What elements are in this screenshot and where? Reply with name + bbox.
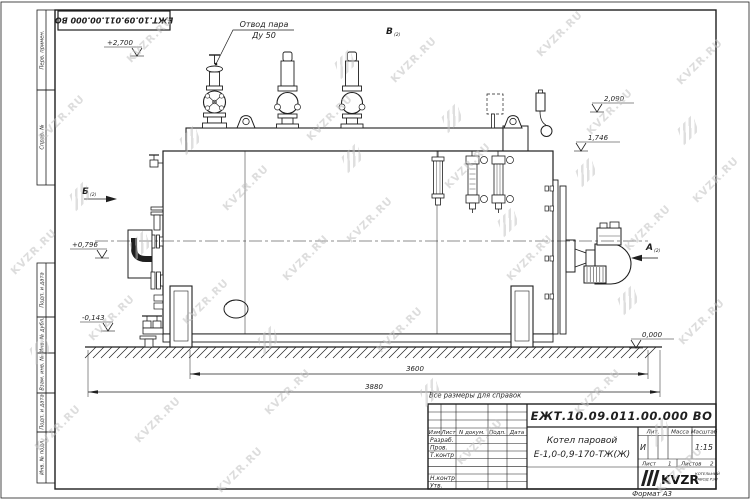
elevation-2700: +2,700 — [107, 39, 133, 47]
steam-outlet-callout: Отвод пара Ду 50 — [215, 20, 294, 65]
boiler-drawing-svg: Перв. примен. Справ. № Подп. и дата Инв.… — [0, 0, 750, 500]
format-label: Формат А3 — [632, 490, 672, 498]
view-v-sheet-ref: (2) — [394, 32, 401, 38]
frame-label-inv-dubl: Инв. № дубл. — [40, 317, 46, 353]
boiler-shell — [163, 126, 566, 342]
safety-valve-1 — [275, 52, 301, 128]
col-podp: Подп. — [489, 430, 506, 436]
lifting-lug-1 — [237, 116, 255, 128]
stamp-code: ЕЖТ.10.09.011.00.000 ВО — [55, 15, 174, 24]
elevation-0796: +0,796 — [72, 241, 98, 249]
elevation-1746: 1,746 — [588, 134, 609, 142]
dim-3600-value: 3600 — [406, 365, 424, 373]
massa-header: Масса — [671, 429, 689, 435]
phantom-fitting — [487, 94, 503, 128]
product-name-line1: Котел паровой — [547, 436, 618, 446]
control-box — [503, 126, 528, 153]
safety-valve-2 — [339, 52, 365, 128]
scale-value: 1:15 — [695, 443, 713, 452]
base-frame — [163, 334, 553, 342]
elevation-2090: 2,090 — [604, 95, 625, 103]
view-b-sheet-ref: (2) — [90, 192, 97, 198]
drain-valves — [140, 316, 163, 347]
view-v-label: В — [386, 27, 393, 37]
view-a-arrow — [631, 255, 642, 262]
frame-label-inv-podl: Инв. № подл. — [40, 439, 46, 475]
drawing-sheet: Перв. примен. Справ. № Подп. и дата Инв.… — [0, 0, 750, 500]
col-ndokum: N докум. — [459, 430, 485, 436]
ground — [85, 347, 662, 358]
row-razrab: Разраб. — [430, 437, 454, 444]
col-izm: Изм — [429, 430, 441, 436]
steam-casing-strip — [186, 128, 503, 151]
water-level-indicator — [432, 151, 444, 205]
view-a-label: А — [645, 243, 653, 253]
sheet-label: Лист — [641, 461, 657, 467]
row-utv: Утв. — [430, 482, 443, 489]
steam-valve — [203, 55, 227, 128]
left-margin-labels: Перв. примен. Справ. № Подп. и дата Инв.… — [37, 10, 55, 483]
pressure-gauge — [536, 90, 552, 137]
kvzr-logo: KVZR КОТЕЛЬНЫЙ ЗАВОД РЭП — [641, 470, 720, 487]
frame-label-perv-primen: Перв. примен. — [40, 31, 46, 70]
sheet-value: 1 — [668, 461, 672, 467]
col-list: Лист — [440, 430, 456, 436]
elevation-m0143: -0,143 — [82, 314, 105, 322]
blowoff-valve-top-left — [149, 155, 163, 167]
dimension-3600: 3600 — [190, 350, 648, 379]
row-prov: Пров. — [430, 444, 448, 451]
row-tkontr: Т.контр — [430, 452, 454, 459]
product-name-line2: Е-1,0-0,9-170-ТЖ(Ж) — [534, 450, 630, 460]
kvzr-logo-text: KVZR — [661, 472, 699, 487]
frame-label-podp-data-2: Подп. и дата — [40, 394, 46, 429]
lit-value: И — [640, 443, 646, 452]
view-b-label: Б — [82, 187, 89, 197]
steam-outlet-label-line2: Ду 50 — [251, 31, 276, 40]
masshtab-header: Масштаб — [691, 429, 718, 435]
doc-number: ЕЖТ.10.09.011.00.000 ВО — [531, 409, 713, 423]
burner-motor — [597, 228, 621, 245]
orientation-stamp: ЕЖТ.10.09.011.00.000 ВО — [55, 11, 174, 30]
burner-grille — [584, 266, 606, 283]
support-leg-left — [170, 286, 192, 347]
frame-label-podp-data-1: Подп. и дата — [40, 272, 46, 307]
view-marker-b: Б (2) — [82, 187, 117, 202]
view-marker-v: В (2) — [386, 27, 401, 38]
title-block: ЕЖТ.10.09.011.00.000 ВО Котел паровой Е-… — [428, 404, 720, 489]
lifting-lug-2 — [504, 116, 522, 128]
reference-note: Все размеры для справок — [429, 392, 522, 400]
left-nozzles — [151, 207, 163, 309]
front-plate-outer — [560, 186, 566, 334]
kvzr-logo-sub1: КОТЕЛЬНЫЙ — [695, 471, 720, 476]
col-data: Дата — [509, 430, 525, 436]
burner — [566, 222, 631, 284]
support-leg-right — [511, 286, 533, 347]
steam-outlet-label-line1: Отвод пара — [240, 20, 289, 29]
frame-label-sprav-no: Справ. № — [40, 124, 46, 149]
elevation-0000: 0,000 — [642, 331, 663, 339]
row-nkontr: Н.контр — [430, 475, 455, 482]
ground-hatch — [85, 347, 656, 358]
dim-3880-value: 3880 — [365, 383, 383, 391]
lit-header: Лит. — [646, 429, 660, 435]
frame-label-vzam-inv: Взам. инв. № — [40, 355, 46, 390]
view-a-sheet-ref: (2) — [654, 248, 661, 254]
view-marker-a: А (2) — [631, 243, 661, 261]
sheets-value: 2 — [710, 461, 714, 467]
sheets-label: Листов — [680, 461, 702, 467]
view-b-arrow — [106, 196, 117, 203]
smoke-box — [128, 230, 152, 278]
kvzr-logo-sub2: ЗАВОД РЭП — [695, 477, 718, 482]
